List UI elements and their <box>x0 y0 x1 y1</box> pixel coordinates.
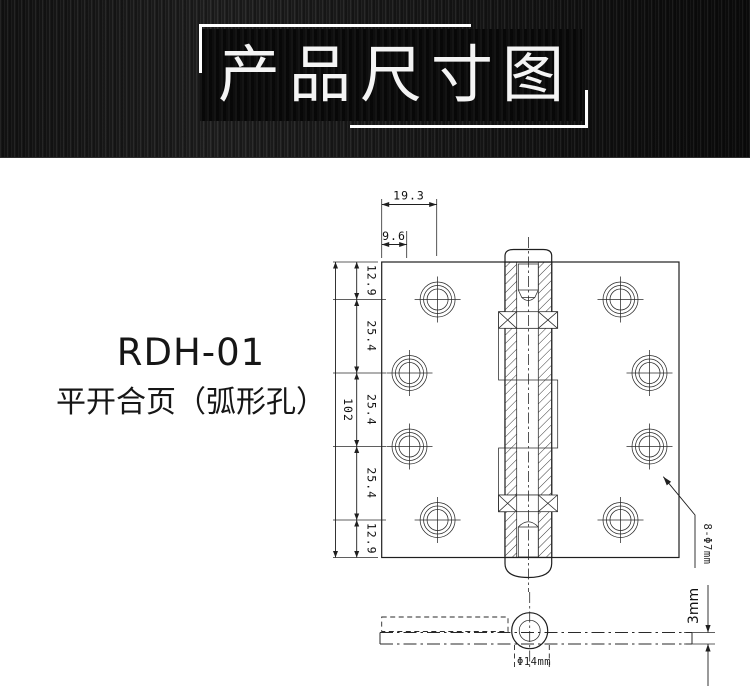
bottom-view: Φ14mm 3mm <box>380 585 715 686</box>
dim-thickness: 3mm <box>686 588 702 624</box>
dim-segment-4: 25.4 <box>365 467 379 499</box>
left-leaf-plate <box>382 262 505 558</box>
thickness-dimension: 3mm <box>684 585 715 686</box>
hole <box>415 277 461 323</box>
dim-segment-2: 25.4 <box>365 320 379 352</box>
hole <box>627 424 673 470</box>
hole <box>627 350 673 396</box>
hinge-barrel <box>499 250 558 578</box>
main-view <box>382 237 679 592</box>
technical-drawing: 19.3 9.6 102 <box>0 0 750 691</box>
dim-segment-5: 12.9 <box>365 523 379 555</box>
dim-segment-1: 12.9 <box>365 265 379 297</box>
right-leaf-plate <box>552 262 679 558</box>
screw-holes-left <box>387 277 461 544</box>
hole <box>598 497 644 543</box>
hole <box>387 424 433 470</box>
hole-callout: 8-Φ7mm <box>701 524 713 565</box>
folded-leaf-hidden <box>382 617 508 632</box>
dim-total-height: 102 <box>341 398 355 422</box>
plate-profile <box>380 633 692 645</box>
page: 产品尺寸图 RDH-01 平开合页（弧形孔） <box>0 0 750 691</box>
hole <box>415 497 461 543</box>
dim-width-inner: 9.6 <box>382 229 406 243</box>
bearing-row-bottom <box>499 495 558 512</box>
dim-segment-3: 25.4 <box>365 394 379 426</box>
dim-width-outer: 19.3 <box>393 189 425 203</box>
hole-callout-leader: 8-Φ7mm <box>663 477 713 568</box>
hole <box>387 350 433 396</box>
bearing-row-top <box>499 312 558 329</box>
screw-holes-right <box>598 277 673 544</box>
hole <box>598 277 644 323</box>
dim-knuckle-diameter: Φ14mm <box>517 656 551 668</box>
